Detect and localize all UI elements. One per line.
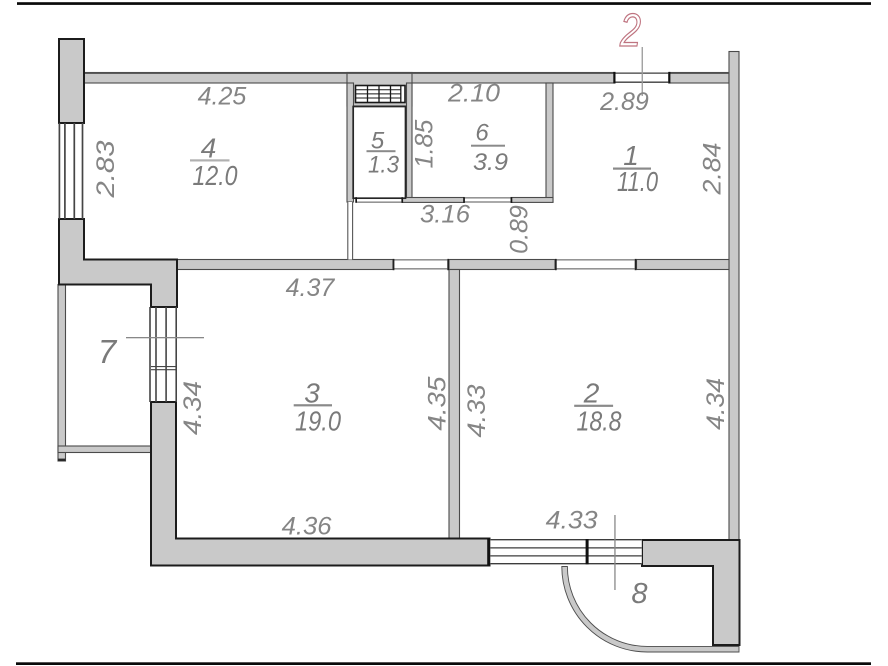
svg-text:19.0: 19.0	[295, 406, 341, 437]
svg-text:2.10: 2.10	[447, 80, 500, 108]
svg-text:2.84: 2.84	[699, 143, 727, 196]
svg-text:3.9: 3.9	[473, 149, 508, 176]
svg-text:4.37: 4.37	[286, 274, 336, 302]
svg-text:4.34: 4.34	[702, 378, 730, 430]
svg-text:2: 2	[619, 4, 641, 56]
svg-text:12.0: 12.0	[193, 160, 238, 191]
svg-text:1.3: 1.3	[368, 152, 400, 179]
svg-text:1.85: 1.85	[411, 120, 439, 169]
svg-text:18.8: 18.8	[577, 406, 622, 437]
svg-text:6: 6	[475, 120, 489, 147]
svg-text:2: 2	[583, 378, 600, 409]
svg-text:4.34: 4.34	[179, 381, 207, 435]
svg-text:7: 7	[98, 333, 118, 370]
svg-text:8: 8	[631, 578, 647, 610]
svg-text:2.83: 2.83	[92, 140, 120, 198]
svg-text:11.0: 11.0	[617, 166, 658, 197]
svg-text:4.33: 4.33	[463, 384, 491, 437]
svg-text:4.25: 4.25	[198, 82, 247, 110]
svg-text:3.16: 3.16	[420, 201, 470, 229]
svg-text:0.89: 0.89	[506, 205, 534, 254]
svg-text:4.36: 4.36	[282, 513, 332, 541]
svg-text:3: 3	[304, 378, 320, 409]
svg-text:4.33: 4.33	[546, 507, 598, 535]
svg-text:4.35: 4.35	[424, 377, 452, 431]
svg-text:2.89: 2.89	[599, 88, 649, 116]
